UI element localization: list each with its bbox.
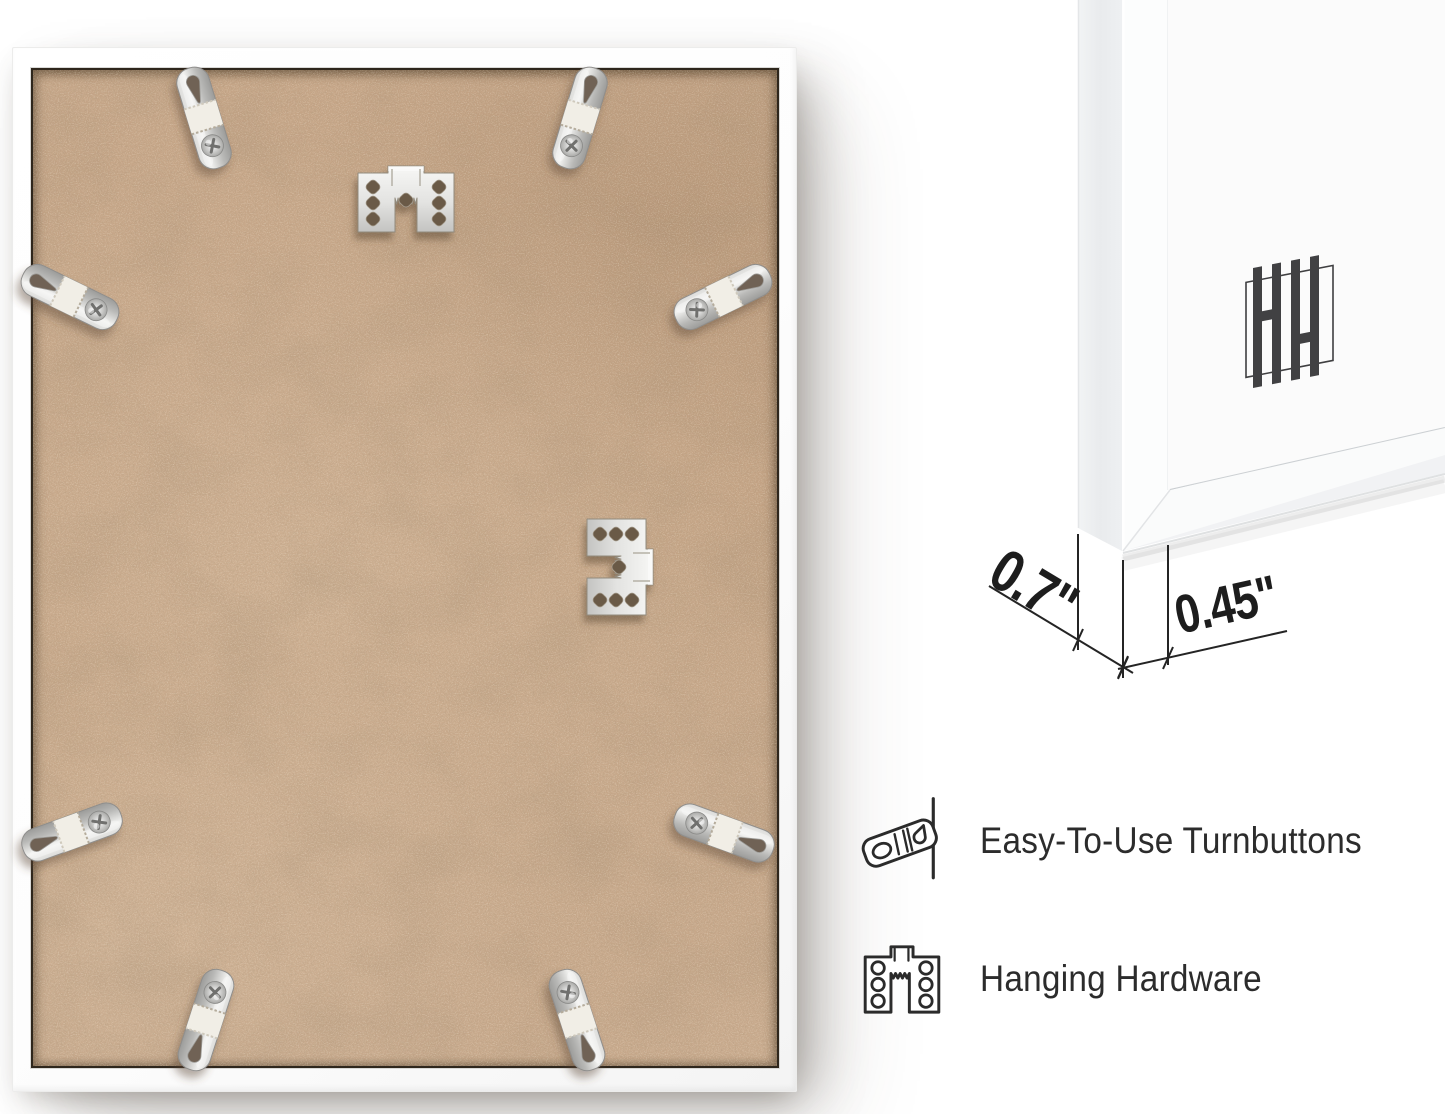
turnbutton xyxy=(173,63,235,172)
product-image: 0.7" 0.45" Easy-To-Use Turnbuttons xyxy=(0,0,1445,1114)
feature-hanging-hardware: Hanging Hardware xyxy=(856,931,1293,1027)
feature-label: Hanging Hardware xyxy=(980,958,1262,1000)
sawtooth-hanger xyxy=(358,166,454,232)
depth-dimension-label: 0.7" xyxy=(979,535,1090,639)
feature-turnbuttons: Easy-To-Use Turnbuttons xyxy=(856,793,1404,889)
corner-dimension-figure: 0.7" 0.45" xyxy=(960,0,1445,720)
face-dimension-label: 0.45" xyxy=(1169,564,1283,645)
turnbutton xyxy=(669,259,777,334)
frame-side-face xyxy=(1078,0,1122,551)
hardware-layer xyxy=(0,0,810,1114)
sawtooth-hanger-icon xyxy=(856,933,948,1025)
turnbutton xyxy=(549,63,611,172)
turnbutton xyxy=(545,965,609,1074)
turnbutton xyxy=(16,259,124,334)
feature-label: Easy-To-Use Turnbuttons xyxy=(980,820,1362,862)
frame-mat xyxy=(1168,0,1445,490)
turnbutton xyxy=(669,800,778,867)
sawtooth-hanger xyxy=(587,519,653,615)
frame-back-photo xyxy=(0,0,810,1114)
turnbutton xyxy=(174,965,238,1074)
frame-front-rail xyxy=(1122,0,1168,551)
turnbutton xyxy=(17,799,126,866)
turnbutton-icon xyxy=(856,795,948,887)
